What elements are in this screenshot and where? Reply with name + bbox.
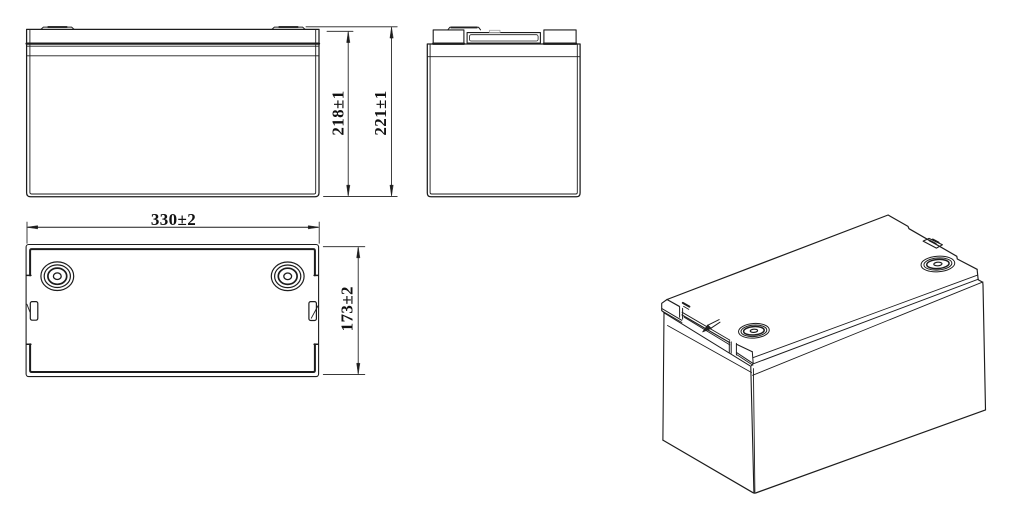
svg-text:330±2: 330±2: [151, 210, 196, 229]
svg-text:173±2: 173±2: [338, 286, 357, 331]
svg-text:218±1: 218±1: [328, 90, 347, 135]
svg-text:221±1: 221±1: [371, 90, 390, 135]
